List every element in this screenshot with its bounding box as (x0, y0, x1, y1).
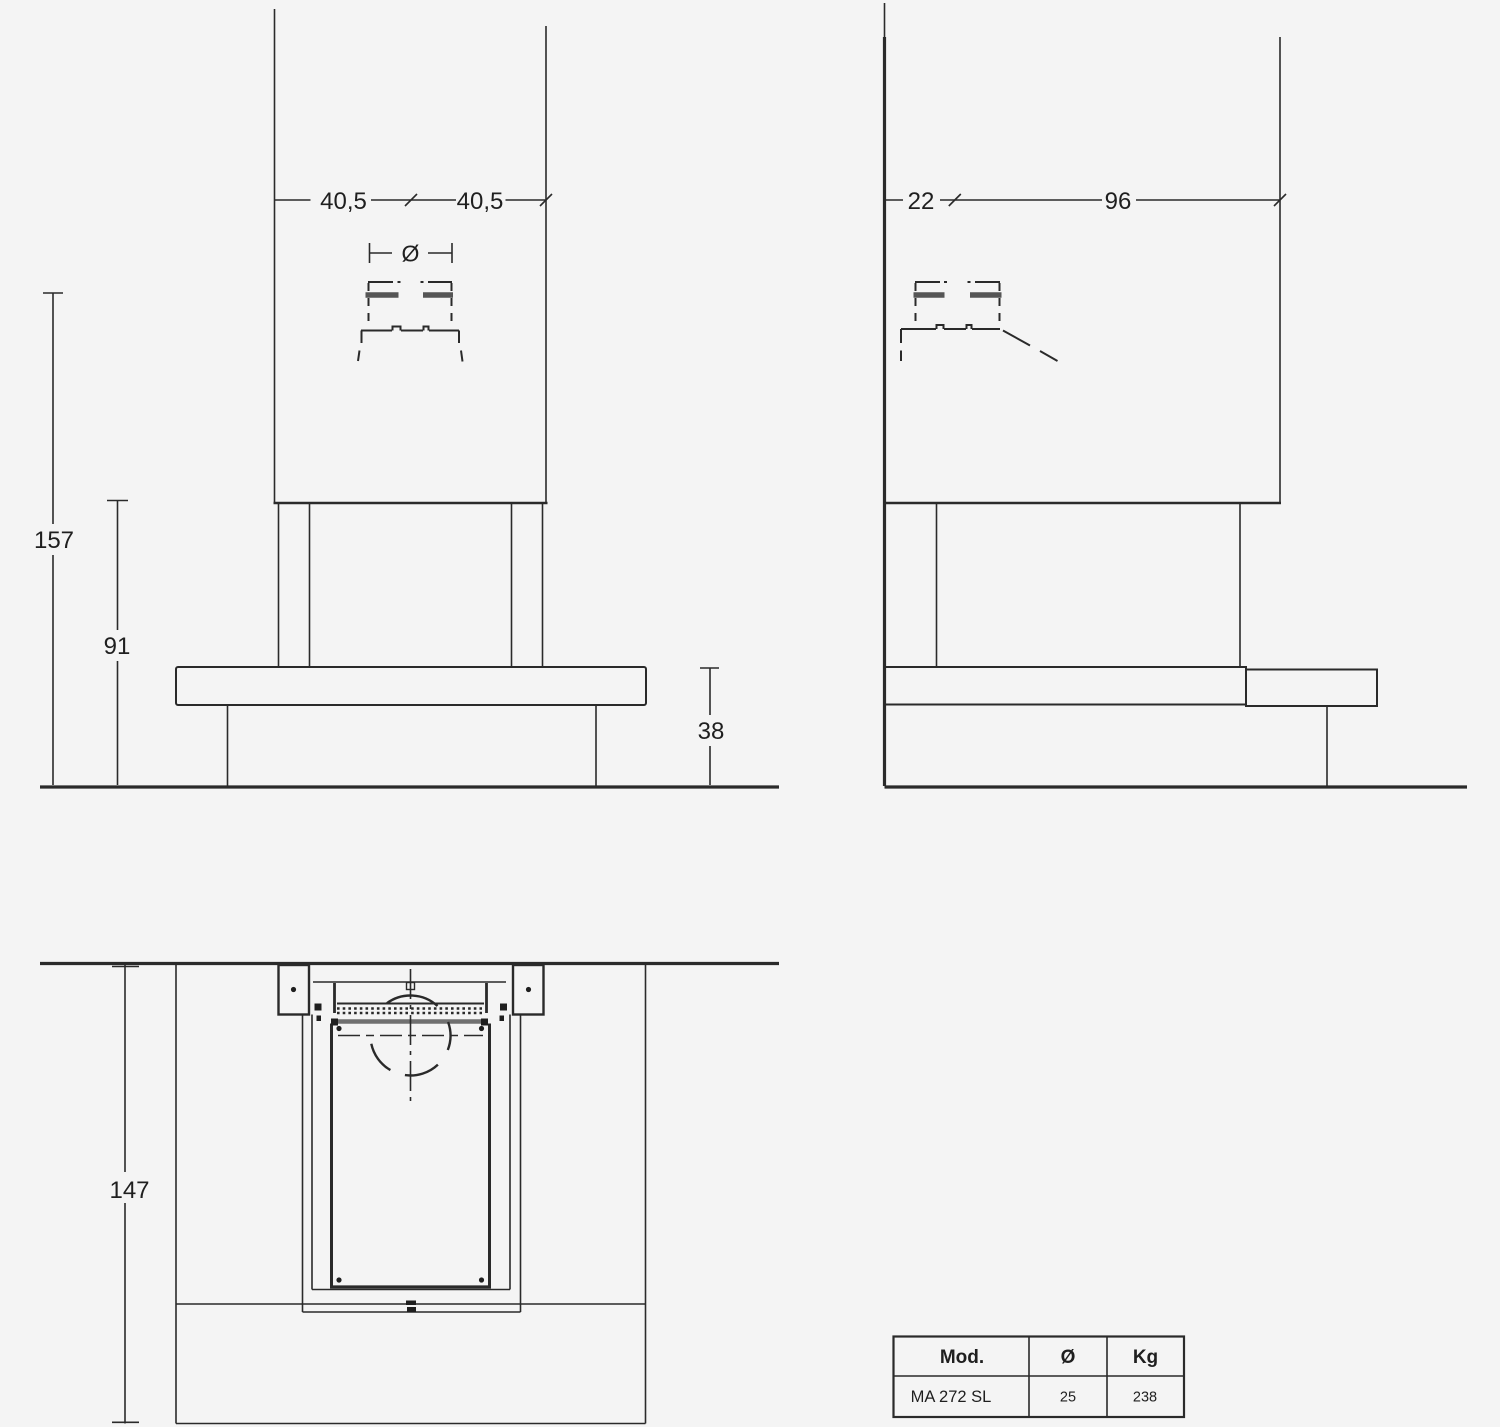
svg-text:Kg: Kg (1133, 1347, 1158, 1368)
svg-text:Ø: Ø (1061, 1347, 1076, 1368)
svg-text:147: 147 (109, 1177, 149, 1204)
svg-text:MA 272 SL: MA 272 SL (911, 1388, 992, 1406)
svg-text:22: 22 (908, 188, 935, 215)
svg-text:91: 91 (104, 633, 131, 660)
svg-text:38: 38 (698, 718, 725, 745)
svg-text:40,5: 40,5 (457, 188, 504, 215)
svg-text:96: 96 (1105, 188, 1132, 215)
svg-text:157: 157 (34, 527, 74, 554)
svg-text:Ø: Ø (402, 241, 420, 267)
svg-text:Mod.: Mod. (940, 1347, 984, 1368)
svg-text:40,5: 40,5 (320, 188, 367, 215)
svg-text:25: 25 (1060, 1390, 1076, 1406)
svg-text:238: 238 (1133, 1390, 1157, 1406)
